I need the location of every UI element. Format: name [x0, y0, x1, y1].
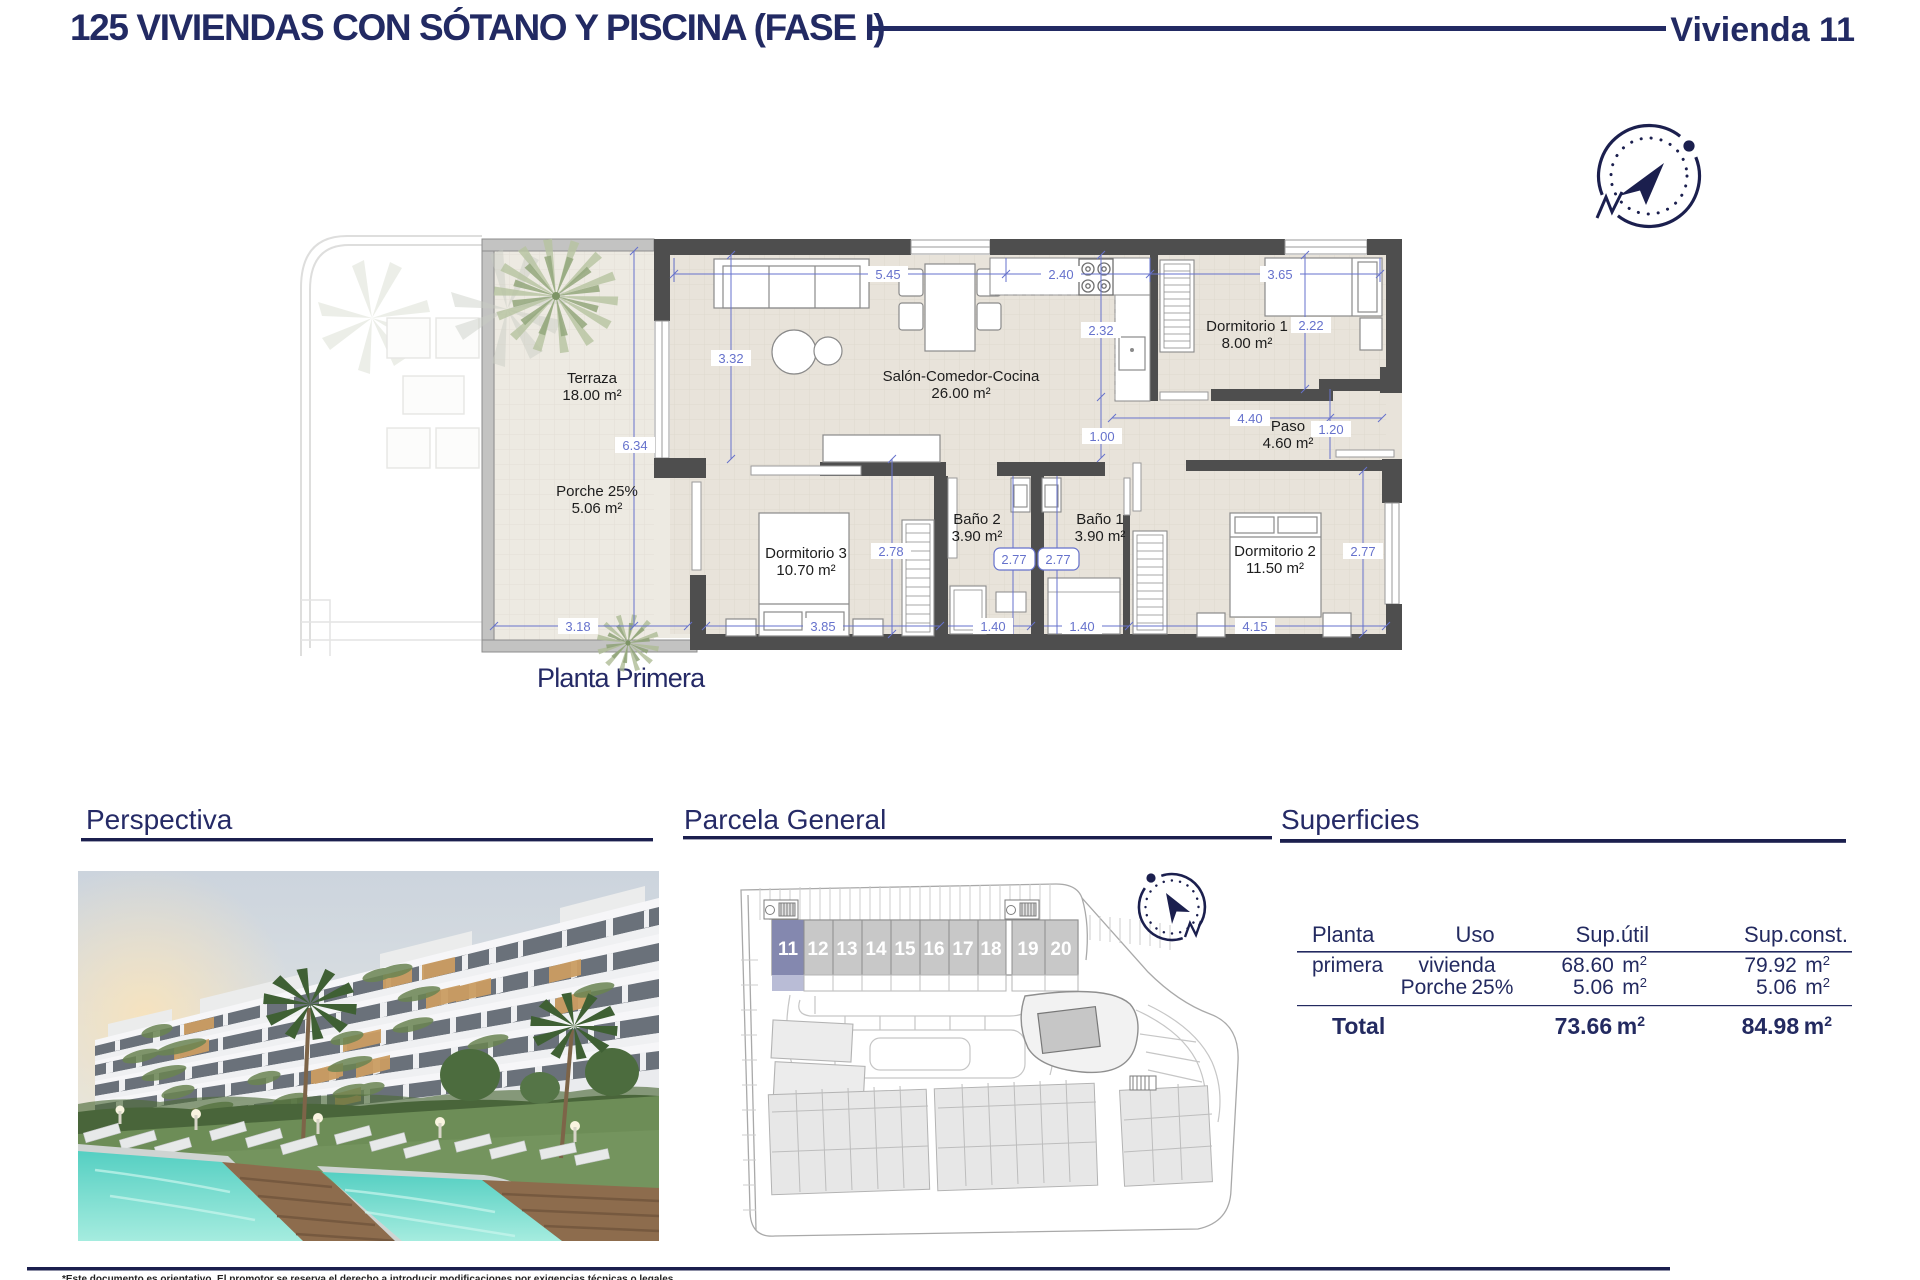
svg-text:11.50 m²: 11.50 m² — [1246, 560, 1304, 577]
svg-text:3.85: 3.85 — [810, 619, 835, 634]
svg-text:Baño 1: Baño 1 — [1076, 511, 1124, 528]
svg-text:Planta: Planta — [1312, 922, 1375, 947]
svg-text:10.70 m²: 10.70 m² — [776, 562, 835, 579]
svg-text:2.40: 2.40 — [1048, 267, 1073, 282]
svg-text:Uso: Uso — [1455, 922, 1494, 947]
svg-text:Dormitorio 2: Dormitorio 2 — [1234, 543, 1316, 560]
svg-text:2.77: 2.77 — [1045, 552, 1070, 567]
svg-text:68.60 m2: 68.60 m2 — [1561, 953, 1647, 977]
svg-text:26.00 m²: 26.00 m² — [931, 385, 990, 402]
svg-text:6.34: 6.34 — [622, 438, 647, 453]
svg-text:vivienda: vivienda — [1418, 954, 1495, 977]
svg-text:2.32: 2.32 — [1088, 323, 1113, 338]
svg-text:4.15: 4.15 — [1242, 619, 1267, 634]
svg-text:18.00 m²: 18.00 m² — [562, 387, 621, 404]
svg-text:17: 17 — [952, 939, 973, 960]
svg-text:Salón-Comedor-Cocina: Salón-Comedor-Cocina — [883, 368, 1040, 385]
svg-text:Dormitorio 1: Dormitorio 1 — [1206, 318, 1288, 335]
svg-text:Baño 2: Baño 2 — [953, 511, 1001, 528]
svg-text:1.40: 1.40 — [980, 619, 1005, 634]
svg-text:84.98 m2: 84.98 m2 — [1742, 1013, 1833, 1039]
svg-text:3.65: 3.65 — [1267, 267, 1292, 282]
svg-text:3.90 m²: 3.90 m² — [952, 528, 1003, 545]
svg-text:2.77: 2.77 — [1350, 544, 1375, 559]
svg-text:12: 12 — [807, 939, 828, 960]
svg-text:Perspectiva: Perspectiva — [86, 804, 233, 835]
svg-text:125 VIVIENDAS CON SÓTANO Y PIS: 125 VIVIENDAS CON SÓTANO Y PISCINA (FASE… — [70, 6, 884, 48]
svg-text:14: 14 — [865, 939, 887, 960]
svg-text:Porche 25%: Porche 25% — [556, 483, 638, 500]
svg-text:1.40: 1.40 — [1069, 619, 1094, 634]
svg-text:2.78: 2.78 — [878, 544, 903, 559]
svg-text:3.32: 3.32 — [718, 351, 743, 366]
svg-text:19: 19 — [1017, 939, 1038, 960]
svg-text:Superficies: Superficies — [1281, 804, 1420, 835]
svg-text:15: 15 — [894, 939, 916, 960]
svg-text:Vivienda 11: Vivienda 11 — [1670, 11, 1855, 49]
svg-text:Total: Total — [1332, 1013, 1385, 1039]
svg-text:8.00 m²: 8.00 m² — [1222, 335, 1273, 352]
svg-text:5.06 m2: 5.06 m2 — [1573, 975, 1647, 999]
svg-text:2.22: 2.22 — [1298, 318, 1323, 333]
svg-text:5.06 m2: 5.06 m2 — [1756, 975, 1830, 999]
svg-text:79.92 m2: 79.92 m2 — [1744, 953, 1830, 977]
svg-text:13: 13 — [836, 939, 857, 960]
svg-text:5.45: 5.45 — [875, 267, 900, 282]
svg-text:4.40: 4.40 — [1237, 411, 1262, 426]
svg-text:16: 16 — [923, 939, 944, 960]
svg-text:Sup.const.: Sup.const. — [1744, 922, 1848, 947]
svg-text:4.60 m²: 4.60 m² — [1263, 435, 1314, 452]
svg-text:Parcela General: Parcela General — [684, 804, 886, 835]
svg-text:20: 20 — [1050, 939, 1071, 960]
svg-text:11: 11 — [778, 939, 799, 960]
svg-text:primera: primera — [1312, 954, 1384, 977]
svg-text:1.00: 1.00 — [1089, 429, 1114, 444]
svg-text:18: 18 — [980, 939, 1001, 960]
svg-text:73.66 m2: 73.66 m2 — [1555, 1013, 1646, 1039]
svg-text:*Este documento es orientativo: *Este documento es orientativo. El promo… — [62, 1274, 676, 1280]
svg-text:1.20: 1.20 — [1318, 422, 1343, 437]
svg-text:Porche 25%: Porche 25% — [1401, 976, 1514, 999]
svg-text:2.77: 2.77 — [1001, 552, 1026, 567]
svg-text:Dormitorio 3: Dormitorio 3 — [765, 545, 847, 562]
svg-text:5.06 m²: 5.06 m² — [572, 500, 623, 517]
svg-text:3.18: 3.18 — [565, 619, 590, 634]
svg-text:3.90 m²: 3.90 m² — [1075, 528, 1126, 545]
svg-text:Paso: Paso — [1271, 418, 1305, 435]
svg-text:Sup.útil: Sup.útil — [1576, 922, 1649, 947]
svg-text:Terraza: Terraza — [567, 370, 618, 387]
